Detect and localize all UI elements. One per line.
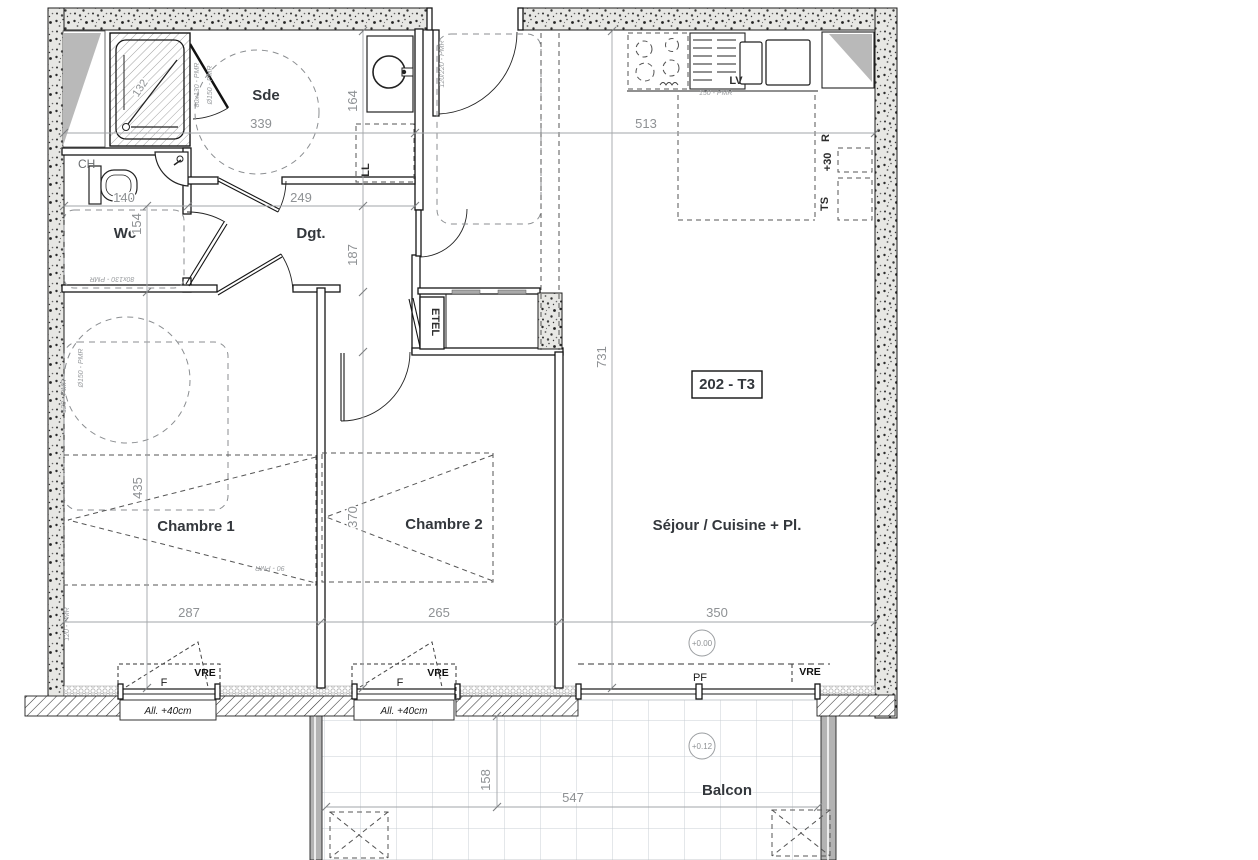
window3-type: PF — [693, 672, 707, 684]
balcony-rail-left — [310, 714, 322, 860]
pmr-chambre1-circle: Ø150 - PMR — [78, 349, 85, 389]
window1-type: F — [161, 677, 168, 689]
pmr-kitchen: 150 - PMR — [699, 90, 732, 97]
label-etel: ETEL — [429, 308, 441, 336]
dim-dgt-width: 249 — [290, 190, 312, 205]
dim-chambre1-depth: 435 — [130, 477, 145, 499]
dim-wc-depth: 154 — [129, 213, 144, 235]
wall-chambre1-chambre2 — [317, 288, 325, 688]
window2-shutter: VRE — [427, 667, 449, 679]
dim-sejour-depth: 731 — [594, 346, 609, 368]
wall-right — [875, 8, 897, 718]
hob — [628, 33, 688, 89]
entrance-door-swing — [439, 32, 517, 114]
pmr-corridor-1: 120 - PMR — [61, 379, 68, 412]
dim-wc-width: 140 — [113, 190, 135, 205]
room-label-ch: CH — [78, 157, 95, 171]
dim-sejour-width: 350 — [706, 605, 728, 620]
window3-shutter: VRE — [799, 666, 821, 678]
wc-door-swing — [187, 212, 225, 222]
pmr-bed: 90 - PMR — [255, 564, 285, 571]
sink-small — [740, 42, 762, 84]
window-chambre1: All. +40cm F VRE — [118, 642, 220, 720]
room-label-sejour: Séjour / Cuisine + Pl. — [653, 517, 802, 534]
shower-door-swing — [193, 108, 228, 119]
room-label-dgt: Dgt. — [296, 225, 325, 242]
wall-dgt-etel — [412, 255, 420, 354]
dim-dgt-depth: 187 — [345, 244, 360, 266]
pmr-entry-zone — [437, 34, 541, 224]
label-ts: TS — [819, 197, 831, 211]
washbasin — [367, 36, 413, 112]
entrance-opening — [431, 6, 519, 32]
chambre2-door-swing — [341, 352, 410, 421]
wall-sde-entree — [415, 29, 423, 210]
pmr-shower-size: 80x130 - PMR — [194, 63, 201, 108]
pmr-entry-door: 120/220 - PMR — [439, 40, 446, 87]
unit-label-box: 202 - T3 — [692, 371, 762, 398]
dim-balcon-width: 547 — [562, 790, 584, 805]
chambre1-door-swing — [281, 254, 293, 292]
window1-shutter: VRE — [194, 667, 216, 679]
label-r: R — [820, 134, 832, 142]
balcony-tiles — [322, 700, 823, 860]
dim-chambre1-width: 287 — [178, 605, 200, 620]
allege-label-1: All. +40cm — [144, 706, 192, 717]
floor-plan: All. +40cm F VRE All. +40cm F VRE PF VRE — [0, 0, 1258, 860]
unit-label: 202 - T3 — [699, 376, 755, 393]
pmr-chambre1-zone — [64, 342, 228, 510]
room-label-chambre2: Chambre 2 — [405, 516, 483, 533]
floor-plan-drawing: All. +40cm F VRE All. +40cm F VRE PF VRE — [0, 0, 1258, 860]
dim-sde-width: 339 — [250, 116, 272, 131]
pmr-corridor-2: 120 - PMR — [64, 607, 71, 640]
dim-cuisine-width: 513 — [635, 116, 657, 131]
dim-chambre2-width: 265 — [428, 605, 450, 620]
pmr-wc: 80x130 - PMR — [90, 275, 135, 282]
sde-door-leaf — [218, 178, 279, 212]
window-chambre2: All. +40cm F VRE — [352, 642, 460, 720]
balcony — [310, 700, 836, 860]
window2-type: F — [397, 677, 404, 689]
doors — [186, 30, 517, 421]
level-interior: +0.00 — [692, 639, 713, 648]
sink-main — [766, 40, 810, 85]
sejour-door-leaf — [416, 210, 421, 256]
allege-label-2: All. +40cm — [380, 706, 428, 717]
wall-chambre2-sejour — [555, 352, 563, 688]
reservation-box-1 — [838, 148, 872, 172]
wc-door-leaf — [186, 222, 227, 286]
wall-left — [48, 8, 64, 700]
sejour-door-swing — [420, 209, 467, 257]
kitchen-pmr-zone — [678, 95, 815, 220]
chambre1-door-leaf — [217, 254, 282, 295]
label-dishwasher: LV — [729, 75, 743, 87]
wall-sde-dgt-right — [282, 177, 415, 184]
pmr-shower-circle: Ø150 - PMR — [207, 66, 214, 106]
reservation-box-2 — [838, 178, 872, 220]
window-sejour-pf: PF VRE — [576, 664, 830, 699]
corner-basin — [155, 152, 188, 186]
sde-door-swing — [278, 181, 286, 212]
shower — [110, 33, 190, 146]
wall-pier — [538, 293, 562, 349]
label-washing-machine: LL — [360, 163, 372, 177]
label-plus30: +30 — [822, 153, 834, 172]
room-label-chambre1: Chambre 1 — [157, 518, 235, 535]
level-balcony: +0.12 — [692, 742, 713, 751]
room-label-balcon: Balcon — [702, 782, 752, 799]
dim-balcon-depth: 158 — [478, 769, 493, 791]
chambre2-door-leaf — [341, 353, 344, 421]
dim-entree-depth: 164 — [345, 90, 360, 112]
wall-sde-dgt-left — [188, 177, 218, 184]
room-label-sde: Sde — [252, 87, 280, 104]
dim-chambre2-depth: 370 — [345, 506, 360, 528]
